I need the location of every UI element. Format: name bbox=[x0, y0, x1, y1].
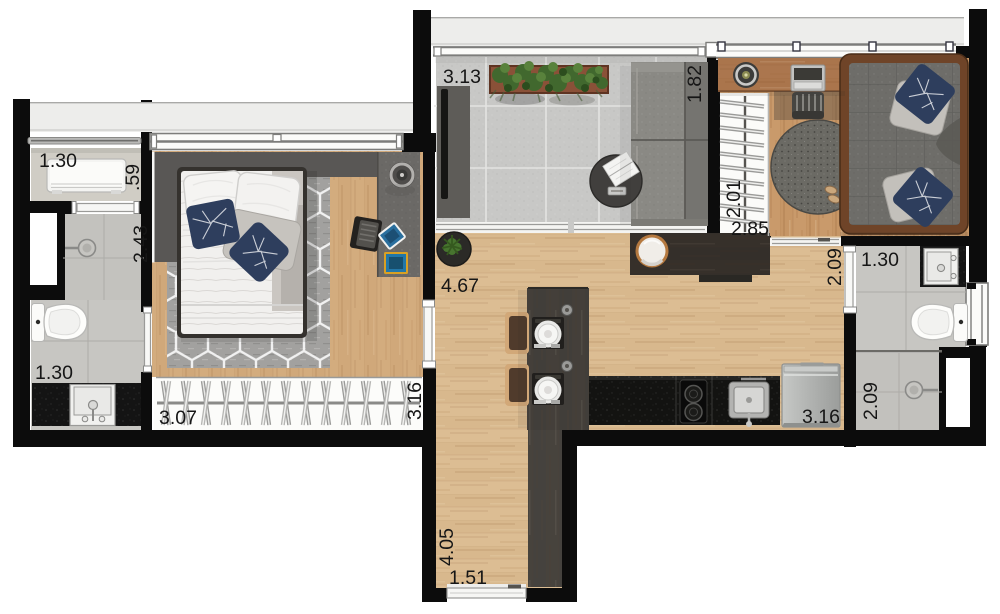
svg-text:2.85: 2.85 bbox=[731, 218, 769, 240]
svg-text:1.51: 1.51 bbox=[449, 567, 487, 589]
svg-text:1.30: 1.30 bbox=[861, 249, 899, 271]
svg-text:1.82: 1.82 bbox=[684, 65, 706, 103]
svg-text:3.16: 3.16 bbox=[404, 382, 426, 420]
svg-text:.59: .59 bbox=[122, 164, 144, 191]
svg-text:2.01: 2.01 bbox=[723, 180, 745, 218]
svg-text:3.13: 3.13 bbox=[443, 66, 481, 88]
svg-text:3.16: 3.16 bbox=[802, 406, 840, 428]
svg-text:1.30: 1.30 bbox=[39, 150, 77, 172]
svg-text:1.30: 1.30 bbox=[35, 362, 73, 384]
svg-text:4.67: 4.67 bbox=[441, 275, 479, 297]
svg-text:4.05: 4.05 bbox=[436, 528, 458, 566]
svg-text:3.07: 3.07 bbox=[159, 407, 197, 429]
svg-text:2.43: 2.43 bbox=[130, 225, 152, 263]
svg-text:2.09: 2.09 bbox=[824, 248, 846, 286]
svg-text:2.09: 2.09 bbox=[860, 382, 882, 420]
